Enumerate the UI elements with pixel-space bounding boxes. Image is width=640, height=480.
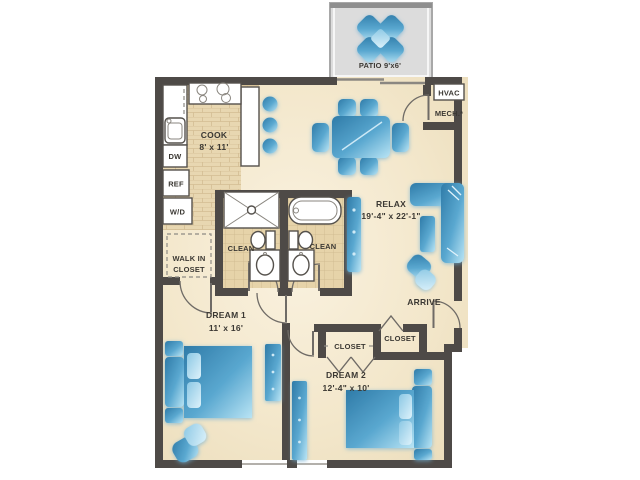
wall-segment <box>423 85 431 96</box>
bath2-label: CLEAN <box>310 242 337 251</box>
bedroom1-dims: 11' x 16' <box>209 323 243 333</box>
pillow <box>399 394 412 419</box>
headboard <box>165 357 184 407</box>
patio: PATIO 9'x6' <box>330 3 432 80</box>
washer-dryer-label: W/D <box>170 208 186 217</box>
entry-label: ARRIVE <box>407 297 441 307</box>
windows <box>242 460 327 468</box>
bedroom2-name: DREAM 2 <box>326 370 366 380</box>
nightstand <box>165 341 183 356</box>
bath1-label: CLEAN <box>228 244 255 253</box>
dining-chair <box>338 99 356 117</box>
bathtub <box>289 197 341 224</box>
closet-entry-label: CLOSET <box>384 334 416 343</box>
wall-segment <box>155 77 163 468</box>
wall-segment <box>318 332 326 358</box>
wall-segment <box>282 323 290 468</box>
floor-plan: PATIO 9'x6' <box>0 0 640 480</box>
nightstand <box>414 369 432 385</box>
wall-segment <box>155 77 337 85</box>
wall-segment <box>444 344 452 468</box>
refrigerator: REF <box>163 170 189 196</box>
bedroom1-name: DREAM 1 <box>206 310 246 320</box>
wall-segment <box>280 190 288 296</box>
dishwasher-label: DW <box>169 152 183 161</box>
dresser <box>265 344 281 401</box>
bedroom2-dims: 12'-4" x 10' <box>323 383 370 393</box>
bed <box>165 341 252 423</box>
dining-chair <box>312 123 329 152</box>
dining-chair <box>360 99 378 117</box>
pillow <box>399 421 412 445</box>
wall-segment <box>314 324 379 332</box>
wall-segment <box>373 352 452 360</box>
wall-segment <box>155 277 180 285</box>
kitchen-dims: 8' x 11' <box>199 142 228 152</box>
wall-segment <box>320 288 352 296</box>
bar-stools <box>263 97 278 154</box>
dining-chair <box>392 123 409 152</box>
living-name: RELAX <box>376 199 406 209</box>
nightstand <box>165 408 183 423</box>
pillow <box>187 353 201 379</box>
closet-bedroom2-label: CLOSET <box>334 342 366 351</box>
media-console <box>347 197 361 272</box>
stove <box>189 83 241 104</box>
living-dims: 19'-4" x 22'-1" <box>361 211 420 221</box>
side-table <box>420 216 435 252</box>
walkin-closet-line1: WALK IN <box>172 254 205 263</box>
wall-segment <box>278 288 292 296</box>
walkin-closet-line2: CLOSET <box>173 265 205 274</box>
refrigerator-label: REF <box>168 180 184 189</box>
patio-label: PATIO 9'x6' <box>359 61 401 70</box>
dresser <box>292 381 307 460</box>
wall-segment <box>155 460 242 468</box>
patio-top-edge <box>330 3 432 8</box>
pillow <box>187 382 201 408</box>
kitchen-bar-counter <box>241 87 259 166</box>
floor-plan-page: PATIO 9'x6' <box>0 0 640 480</box>
shower <box>224 192 279 228</box>
hvac-label: HVAC <box>438 89 460 98</box>
headboard <box>412 386 432 448</box>
nightstand <box>414 449 432 460</box>
dishwasher: DW <box>163 145 187 167</box>
kitchen-name: COOK <box>201 130 228 140</box>
dining-chair <box>338 157 356 175</box>
vanity-sink <box>250 250 280 281</box>
dining-chair <box>360 157 378 175</box>
washer-dryer: W/D <box>163 198 192 224</box>
vanity-sink <box>288 250 314 281</box>
wall-segment <box>215 288 248 296</box>
kitchen-sink <box>165 118 185 143</box>
toilet <box>251 231 275 249</box>
mech-label: MECH.* <box>435 109 463 118</box>
wall-segment <box>423 122 462 130</box>
wall-segment <box>327 460 452 468</box>
